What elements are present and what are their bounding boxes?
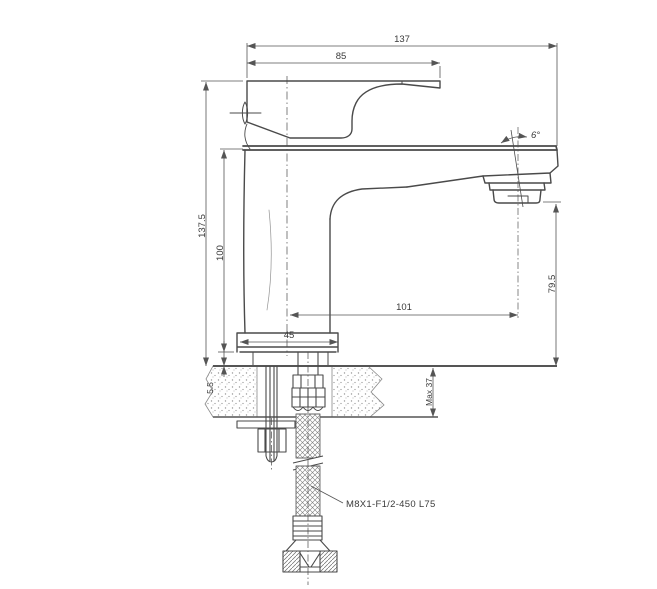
hose-end-nut-hatch-right: [320, 551, 337, 572]
label-spout-reach: 101: [396, 302, 412, 313]
label-hose-spec: M8X1-F1/2-450 L75: [346, 499, 436, 510]
label-gasket-thickness: 5.5: [205, 382, 215, 394]
faucet-outline: [230, 81, 558, 366]
body-front-contour: [267, 210, 271, 310]
spout-underside: [407, 176, 483, 187]
faucet-drawing-svg: 137 85 137.5 100 101 45 79.5 Max 37 5.5 …: [0, 0, 657, 589]
label-base-width: 45: [284, 330, 295, 341]
technical-drawing-canvas: 137 85 137.5 100 101 45 79.5 Max 37 5.5 …: [0, 0, 657, 589]
label-max-counter-thickness: Max 37: [424, 378, 434, 406]
label-handle-length: 85: [336, 51, 347, 62]
hose-end-nut-hatch-left: [283, 551, 300, 572]
hose-crimp-collar: [292, 388, 325, 407]
deck-section-right: [332, 366, 384, 417]
label-overall-height: 137.5: [197, 214, 208, 238]
aerator-tier-1: [483, 173, 551, 183]
base-inlet-stubs: [253, 352, 328, 366]
hose-end-rings: [293, 516, 322, 540]
mounting-nut: [258, 429, 286, 452]
body-left-edge: [244, 150, 245, 333]
body-top-band: [243, 146, 557, 150]
aerator-tier-2: [489, 183, 545, 190]
counter-deck: [205, 366, 557, 417]
label-spout-angle: 6°: [531, 130, 540, 141]
spout-right-face: [550, 150, 558, 173]
dim-6deg-arc: [501, 137, 527, 143]
label-outlet-height: 79.5: [547, 275, 558, 294]
handle-lever: [247, 81, 440, 138]
label-overall-width: 137: [394, 34, 410, 45]
label-body-height: 100: [215, 245, 226, 261]
body-right-curve: [330, 187, 407, 219]
spout-tilt-line: [511, 130, 523, 207]
